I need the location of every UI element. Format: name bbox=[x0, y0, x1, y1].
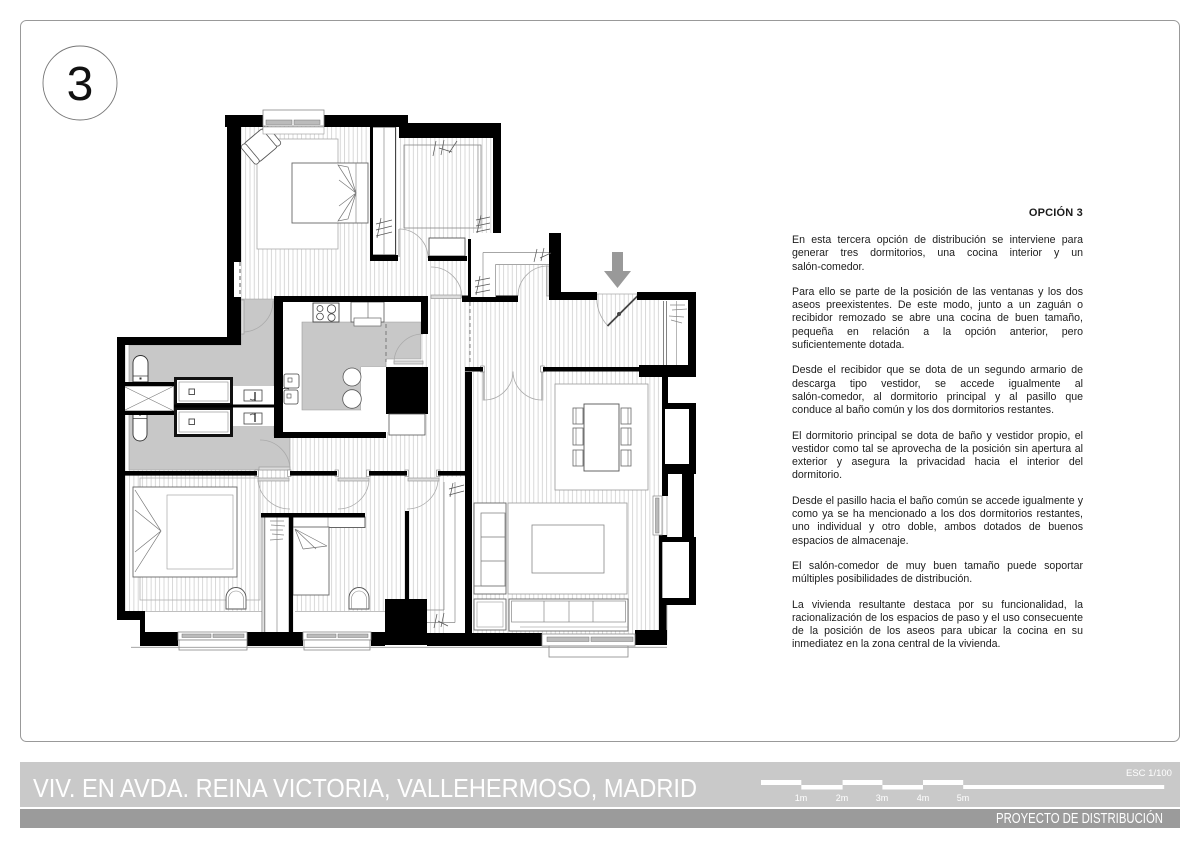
svg-text:PROYECTO DE DISTRIBUCIÓN: PROYECTO DE DISTRIBUCIÓN bbox=[996, 810, 1163, 827]
svg-text:1m: 1m bbox=[795, 793, 808, 803]
svg-text:3m: 3m bbox=[876, 793, 889, 803]
svg-text:3: 3 bbox=[67, 58, 94, 111]
svg-text:4m: 4m bbox=[917, 793, 930, 803]
svg-text:ESC 1/100: ESC 1/100 bbox=[1126, 768, 1172, 779]
svg-text:2m: 2m bbox=[836, 793, 849, 803]
svg-text:5m: 5m bbox=[957, 793, 970, 803]
svg-text:VIV. EN AVDA. REINA VICTORIA,: VIV. EN AVDA. REINA VICTORIA, VALLEHERMO… bbox=[33, 773, 697, 803]
